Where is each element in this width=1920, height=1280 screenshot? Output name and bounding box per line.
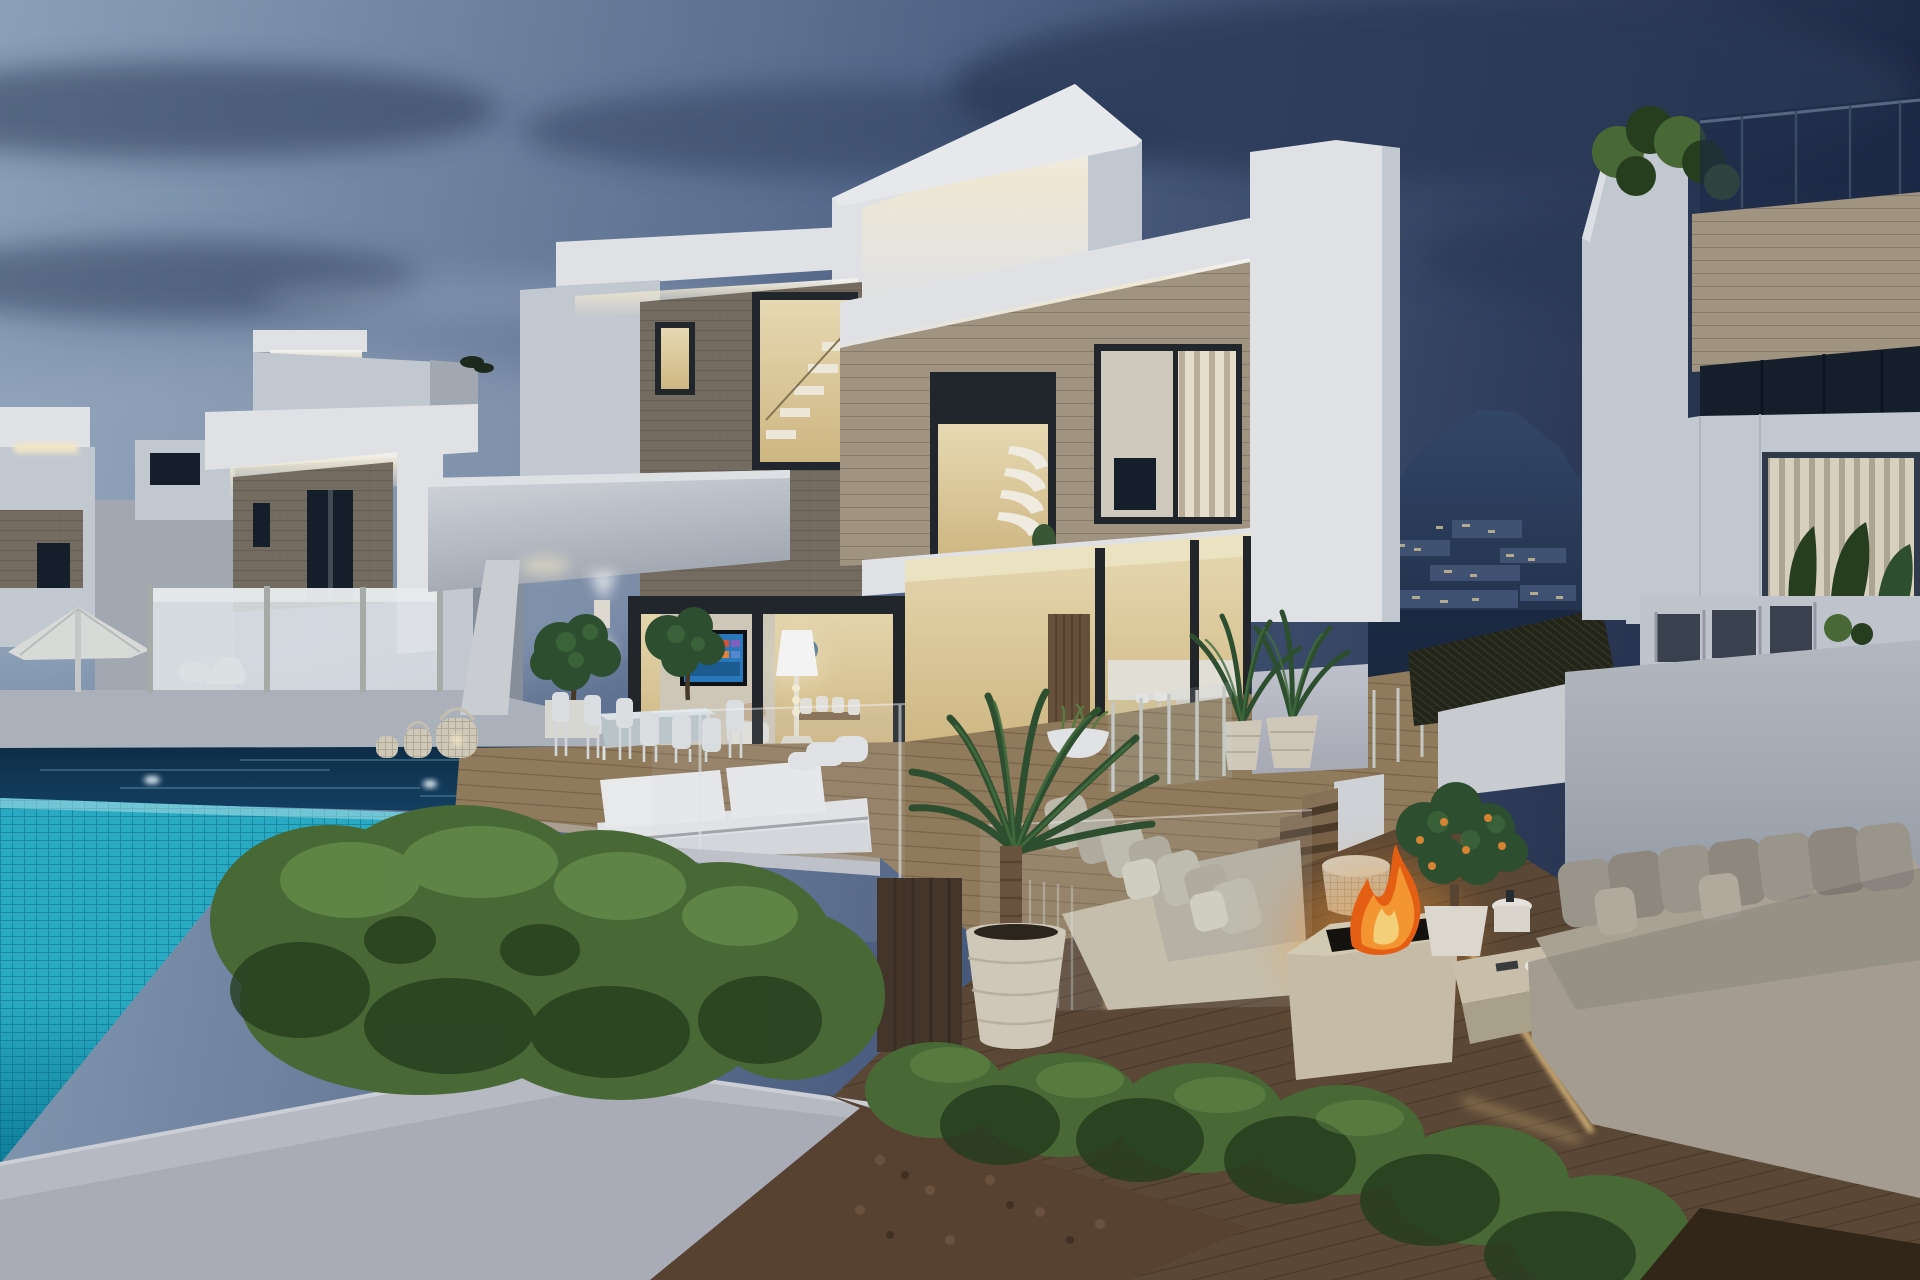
dusk-tint <box>0 0 1920 1280</box>
rendered-scene <box>0 0 1920 1280</box>
